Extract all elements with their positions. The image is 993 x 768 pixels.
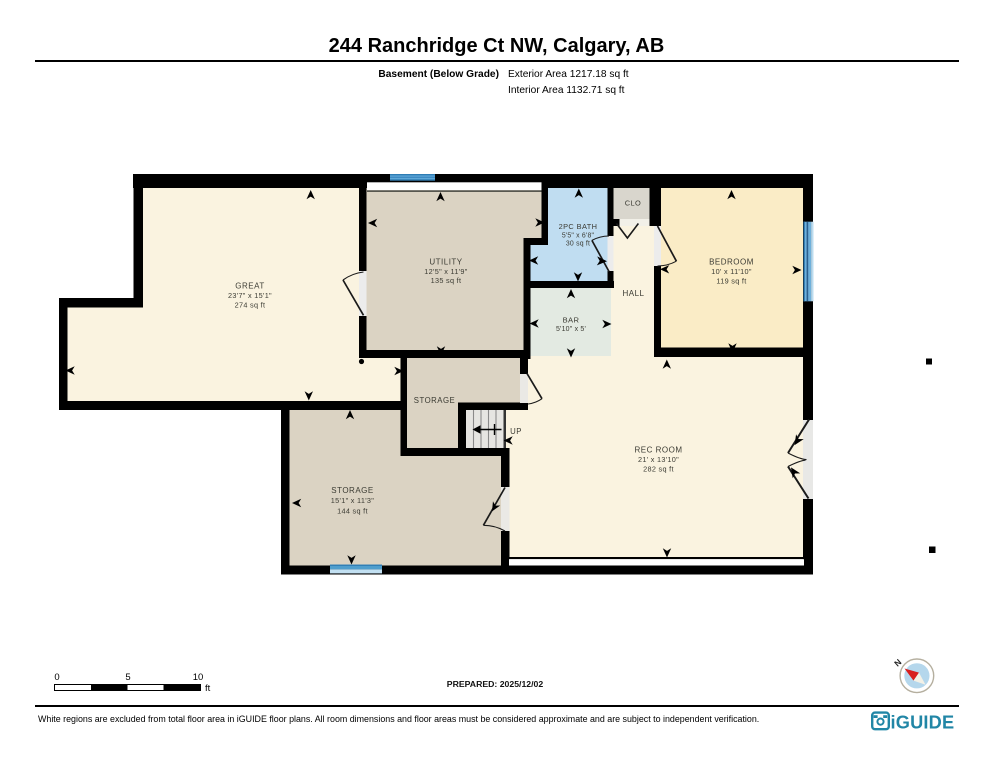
svg-text:274 sq ft: 274 sq ft (235, 301, 266, 310)
svg-text:21' x 13'10": 21' x 13'10" (638, 455, 679, 464)
svg-text:HALL: HALL (622, 289, 644, 298)
svg-text:5'5" x 6'8": 5'5" x 6'8" (562, 233, 595, 240)
svg-text:REC ROOM: REC ROOM (635, 446, 683, 455)
svg-text:STORAGE: STORAGE (414, 396, 455, 405)
svg-text:282 sq ft: 282 sq ft (643, 465, 674, 474)
svg-text:N: N (892, 657, 903, 669)
svg-text:STORAGE: STORAGE (331, 486, 373, 495)
svg-text:iGUIDE: iGUIDE (891, 712, 955, 732)
svg-text:2PC BATH: 2PC BATH (559, 222, 598, 231)
svg-text:119 sq ft: 119 sq ft (716, 277, 746, 286)
svg-text:144 sq ft: 144 sq ft (337, 507, 368, 516)
svg-text:BAR: BAR (563, 316, 580, 325)
svg-text:UTILITY: UTILITY (429, 258, 462, 267)
svg-text:23'7" x 15'1": 23'7" x 15'1" (228, 291, 272, 300)
svg-text:GREAT: GREAT (235, 282, 264, 291)
svg-text:UP: UP (510, 427, 522, 436)
svg-text:135 sq ft: 135 sq ft (431, 276, 462, 285)
svg-text:15'1" x 11'3": 15'1" x 11'3" (331, 496, 374, 505)
svg-text:5'10" x 5': 5'10" x 5' (556, 326, 586, 333)
svg-text:30 sq ft: 30 sq ft (566, 241, 590, 248)
svg-text:BEDROOM: BEDROOM (709, 258, 754, 267)
svg-text:CLO: CLO (625, 199, 641, 208)
svg-text:12'5" x 11'9": 12'5" x 11'9" (424, 267, 467, 276)
svg-text:10' x 11'10": 10' x 11'10" (711, 267, 752, 276)
